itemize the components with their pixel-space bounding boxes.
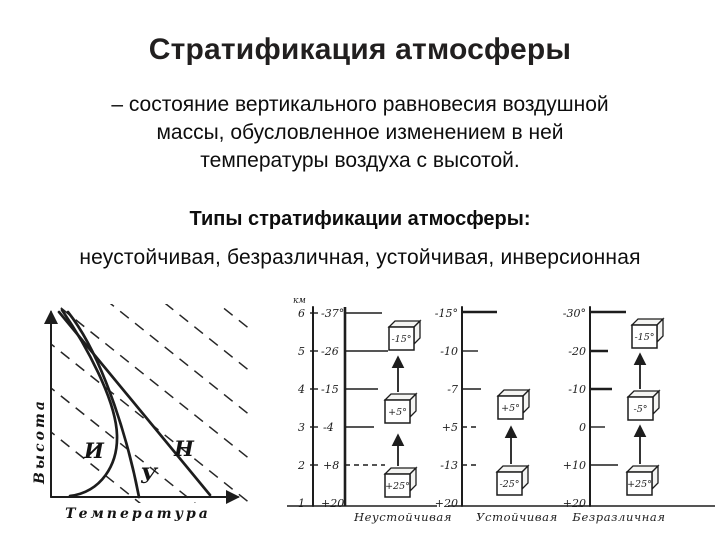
parcel-cube: -5° xyxy=(628,391,659,420)
col1-level-lines xyxy=(345,313,388,465)
parcel-cube: -15° xyxy=(632,319,663,348)
svg-text:-4: -4 xyxy=(323,421,334,434)
slide-title: Стратификация атмосферы xyxy=(0,33,720,67)
parcel-cube: +25° xyxy=(627,466,658,495)
column-name-stable: Устойчивая xyxy=(476,510,558,524)
svg-text:-5°: -5° xyxy=(633,404,647,415)
parcel-cube: +25° xyxy=(385,468,416,497)
curve-unstable xyxy=(59,312,210,495)
svg-text:-13: -13 xyxy=(440,459,458,472)
svg-text:-10: -10 xyxy=(440,345,458,358)
km-tick-labels: 6 5 4 3 2 1 xyxy=(297,307,305,510)
svg-text:-25°: -25° xyxy=(499,479,519,490)
air-parcel-diagram: км 6 5 4 3 2 1 -37° -26 -15 -4 +8 +20 xyxy=(285,293,717,540)
definition-line-2: массы, обусловленное изменением в ней xyxy=(30,119,690,147)
x-axis-label: Температура xyxy=(65,506,211,522)
svg-text:-10: -10 xyxy=(568,383,586,396)
col3-temp-scale: -30° -20 -10 0 +10 +20 xyxy=(563,307,586,510)
svg-text:4: 4 xyxy=(297,383,305,396)
definition-line-3: температуры воздуха с высотой. xyxy=(30,147,690,175)
svg-text:+5°: +5° xyxy=(388,407,407,418)
svg-text:-7: -7 xyxy=(447,383,458,396)
svg-text:-15°: -15° xyxy=(435,307,458,320)
svg-text:+5°: +5° xyxy=(501,403,520,414)
types-heading: Типы стратификации атмосферы: xyxy=(0,208,720,231)
svg-text:6: 6 xyxy=(298,307,305,320)
svg-text:2: 2 xyxy=(297,459,305,472)
y-axis-label: Высота xyxy=(32,398,48,485)
definition-text: – состояние вертикального равновесия воз… xyxy=(30,91,690,175)
svg-text:-30°: -30° xyxy=(563,307,586,320)
curve-label-stable: У xyxy=(140,463,159,488)
svg-text:0: 0 xyxy=(579,421,586,434)
parcel-cube: -15° xyxy=(389,321,420,350)
temperature-height-graph: И У Н Высота Температура xyxy=(26,300,262,538)
svg-text:+20: +20 xyxy=(435,497,458,510)
definition-line-1: – состояние вертикального равновесия воз… xyxy=(30,91,690,119)
column-name-indifferent: Безразличная xyxy=(571,510,665,524)
svg-text:+25°: +25° xyxy=(385,481,410,492)
column-name-unstable: Неустойчивая xyxy=(353,510,452,524)
svg-text:+20: +20 xyxy=(563,497,586,510)
col3-level-lines xyxy=(590,312,626,465)
svg-text:5: 5 xyxy=(298,345,305,358)
svg-text:+8: +8 xyxy=(323,459,339,472)
slide-canvas: Стратификация атмосферы – состояние верт… xyxy=(0,0,720,540)
svg-text:-37°: -37° xyxy=(321,307,344,320)
svg-text:+20: +20 xyxy=(321,497,344,510)
curve-label-inversion: И xyxy=(83,438,105,463)
curve-stable xyxy=(68,312,139,497)
parcel-cube: +5° xyxy=(498,390,529,419)
svg-text:-26: -26 xyxy=(321,345,339,358)
svg-text:3: 3 xyxy=(298,421,305,434)
col2-temp-scale: -15° -10 -7 +5 -13 +20 xyxy=(435,307,458,510)
curve-inversion xyxy=(62,310,117,496)
curve-label-unstable: Н xyxy=(173,436,195,461)
svg-text:1: 1 xyxy=(298,497,305,510)
col2-level-lines xyxy=(462,312,497,465)
svg-text:+10: +10 xyxy=(563,459,586,472)
col1-temp-scale: -37° -26 -15 -4 +8 +20 xyxy=(321,307,344,510)
svg-text:+5: +5 xyxy=(442,421,458,434)
svg-text:-15°: -15° xyxy=(634,332,654,343)
svg-text:-20: -20 xyxy=(568,345,586,358)
svg-text:-15°: -15° xyxy=(391,334,411,345)
parcel-cube: +5° xyxy=(385,394,416,423)
height-unit-label: км xyxy=(293,296,306,306)
svg-text:+25°: +25° xyxy=(627,479,652,490)
parcel-cube: -25° xyxy=(497,466,528,495)
types-list: неустойчивая, безразличная, устойчивая, … xyxy=(0,246,720,270)
svg-text:-15: -15 xyxy=(321,383,339,396)
